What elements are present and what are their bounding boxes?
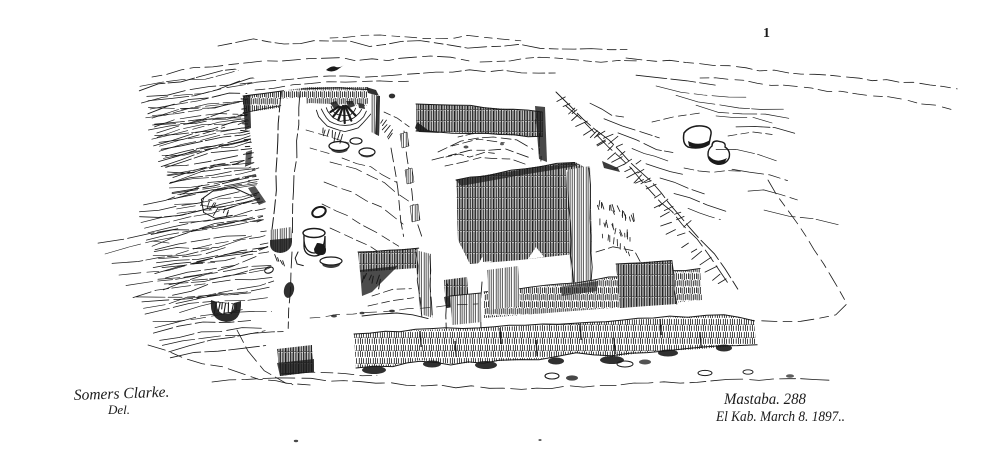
svg-text:El Kab. March 8. 1897..: El Kab. March 8. 1897.. — [715, 409, 845, 425]
svg-text:Somers Clarke.: Somers Clarke. — [74, 384, 170, 404]
svg-text:Mastaba. 288: Mastaba. 288 — [723, 391, 806, 408]
svg-text:Del.: Del. — [107, 402, 130, 417]
svg-text:1: 1 — [763, 26, 770, 41]
